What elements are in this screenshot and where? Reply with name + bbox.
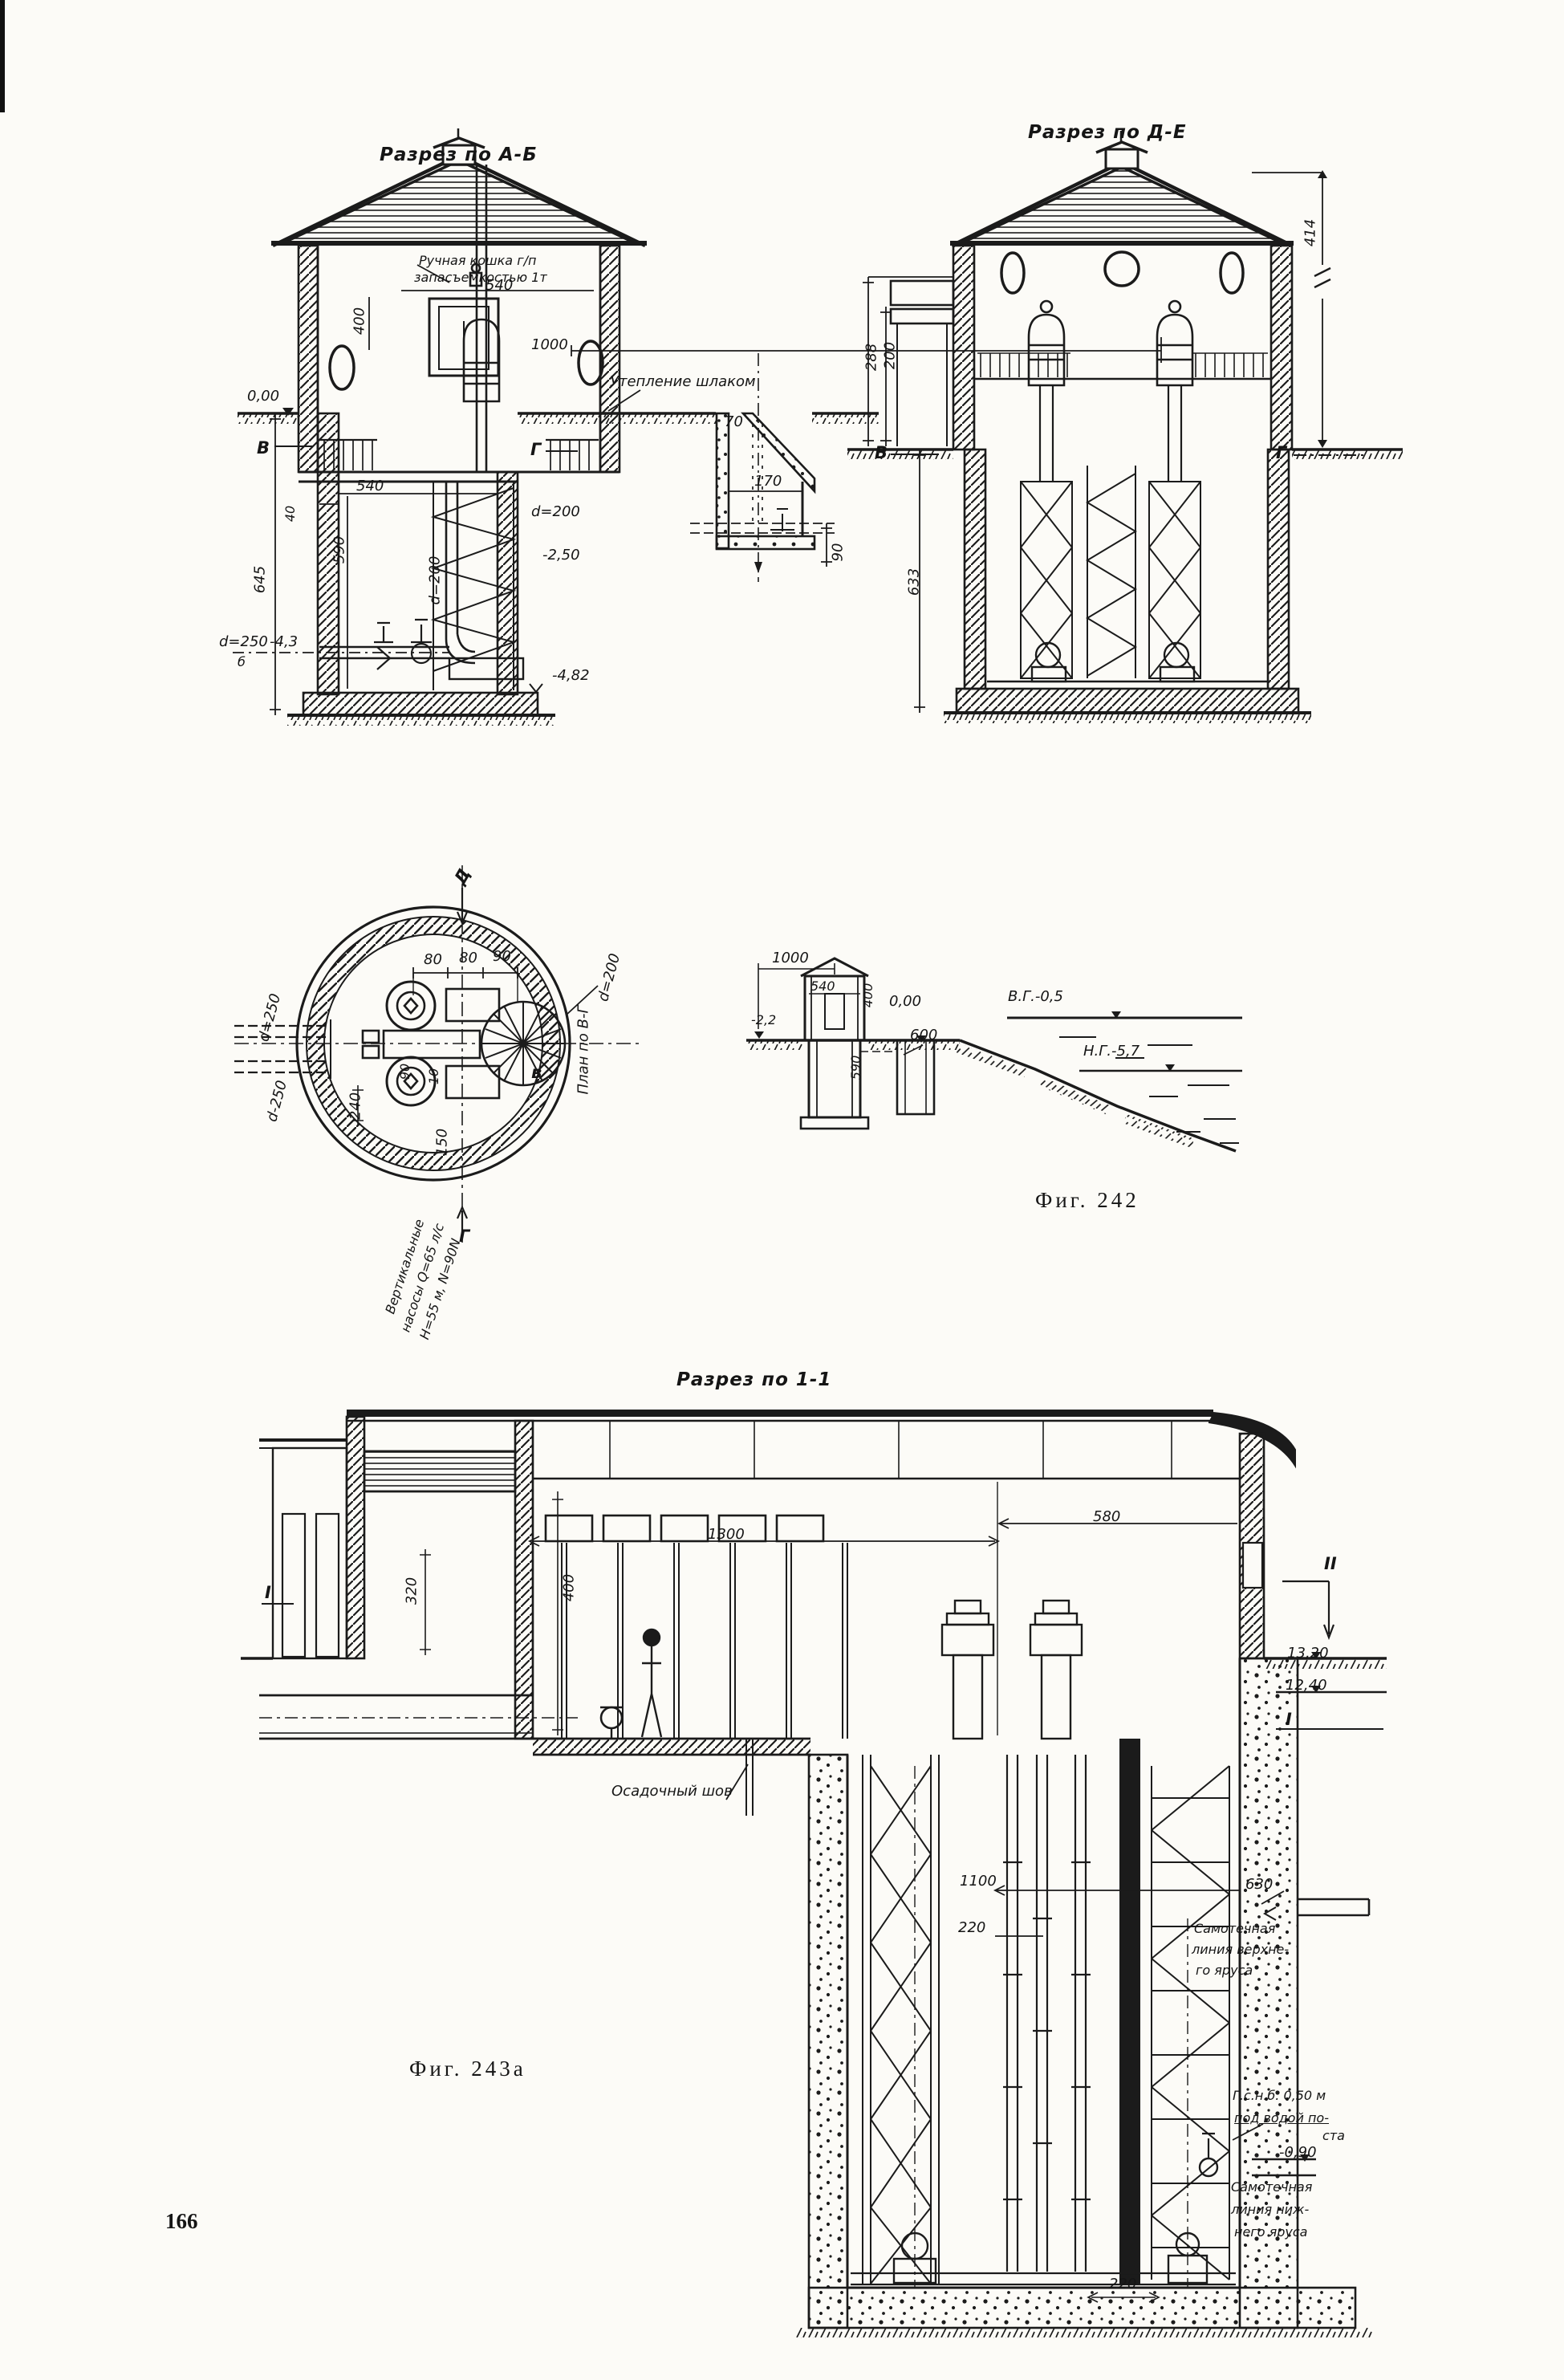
level-minus-0-90: -0,90 xyxy=(1279,2145,1317,2162)
level-13-20: 13,20 xyxy=(1287,1646,1329,1662)
spiral-stair-de xyxy=(1087,466,1135,678)
figure-243a-caption: Фиг. 243а xyxy=(409,2057,526,2081)
dim-220: 220 xyxy=(958,1920,985,1937)
profile-dim-600: 600 xyxy=(910,1027,937,1044)
level-minus-4-82: -4,82 xyxy=(552,668,590,685)
plan-dim-240: 240 xyxy=(348,1092,365,1120)
riser-bells xyxy=(1029,301,1192,482)
dim-633: 633 xyxy=(907,568,924,596)
dim-400-s11: 400 xyxy=(562,1574,579,1601)
settlement-joint-note: Осадочный шов xyxy=(611,1784,733,1800)
section-ab-drawing xyxy=(217,136,891,755)
label-d250: d=250 xyxy=(219,634,268,651)
crane-note-line2: запасъемкостью 1т xyxy=(414,271,547,285)
profile-level-2-2: -2,2 xyxy=(751,1013,776,1027)
profile-level-vg: В.Г.-0,5 xyxy=(1008,989,1063,1006)
gsnb-note-3: ста xyxy=(1322,2129,1345,2143)
dim-220-bottom: 220 xyxy=(1109,2276,1136,2293)
page-number: 166 xyxy=(165,2209,198,2234)
crane-note-line1: Ручная кошка г/п xyxy=(419,254,536,268)
level-0-00: 0,00 xyxy=(247,389,279,405)
dim-645: 645 xyxy=(253,566,270,593)
stair-plan xyxy=(481,1002,565,1085)
dim-540-top: 540 xyxy=(485,278,513,295)
marker-v-de: В xyxy=(875,443,888,462)
profile-level-0-00: 0,00 xyxy=(889,994,921,1011)
plan-view-label: План по В-Г xyxy=(576,1006,593,1095)
gravity-line-lower-3: него яруса xyxy=(1234,2225,1307,2240)
marker-i-left: I xyxy=(265,1583,271,1602)
pit-dim-70: 70 xyxy=(725,414,743,431)
dim-540: 540 xyxy=(356,478,384,495)
pit-label-d200: d=200 xyxy=(531,504,580,521)
pit-dim-90: 90 xyxy=(831,543,847,562)
section-de-drawing xyxy=(843,112,1412,755)
profile-dim-400: 400 xyxy=(861,983,875,1008)
shore-profile-drawing xyxy=(738,939,1252,1180)
section-ab-title: Разрез по А-Б xyxy=(380,144,538,165)
pit-stair xyxy=(1152,1766,1229,2280)
pit-level-minus-2-50: -2,50 xyxy=(542,547,580,564)
section-de-title: Разрез по Д-Е xyxy=(1028,122,1187,143)
plan-dim-150: 150 xyxy=(435,1129,452,1156)
dim-630: 630 xyxy=(1245,1877,1273,1894)
level-12-40: 12,40 xyxy=(1286,1678,1327,1694)
marker-ii: II xyxy=(1324,1554,1337,1573)
gsnb-note-2: под водой по- xyxy=(1234,2111,1329,2126)
window-row xyxy=(546,1515,823,1541)
profile-dim-590: 590 xyxy=(849,1056,863,1080)
gravity-line-upper-1: Самотечная xyxy=(1194,1922,1275,1936)
dim-414: 414 xyxy=(1303,219,1320,246)
scanned-book-page: Разрез по А-Б Ручная кошка г/п запасъемк… xyxy=(0,0,1564,2380)
dim-1100: 1100 xyxy=(960,1873,997,1890)
insulation-note: Утепление шлаком xyxy=(610,374,756,391)
level-minus-4-3: -4,3 xyxy=(270,634,298,651)
marker-b-small: б xyxy=(238,655,246,669)
pumps-de xyxy=(987,643,1268,681)
gravity-line-upper-2: линия верхне- xyxy=(1192,1943,1289,1957)
dim-200: 200 xyxy=(883,342,900,369)
pit-bottom-pumps xyxy=(851,2233,1236,2284)
plan-dim-10: 10 xyxy=(427,1068,441,1084)
dim-1300: 1300 xyxy=(708,1527,745,1544)
valves xyxy=(374,620,432,669)
person-figure xyxy=(642,1629,661,1737)
marker-i-right: I xyxy=(1286,1710,1292,1729)
lattice-towers xyxy=(1021,482,1200,678)
marker-g-de: Г xyxy=(1276,443,1286,462)
gravity-line-upper-3: го яруса xyxy=(1196,1963,1253,1978)
marker-v-small-plan: в xyxy=(531,1063,542,1082)
dim-580: 580 xyxy=(1093,1509,1120,1526)
scan-edge-artifact xyxy=(0,0,5,112)
label-d200-pipe: d=200 xyxy=(428,556,445,605)
plan-dim-90: 90 xyxy=(493,949,511,966)
gravity-line-lower-1: Самотечная xyxy=(1231,2180,1312,2195)
dim-590: 590 xyxy=(332,536,349,563)
dim-40: 40 xyxy=(283,506,298,522)
dim-288: 288 xyxy=(864,344,881,371)
profile-dim-1000: 1000 xyxy=(772,950,809,967)
dim-400: 400 xyxy=(352,307,369,335)
plan-dim-80b: 80 xyxy=(459,950,477,967)
section-11-drawing xyxy=(241,1397,1388,2360)
pump-machines xyxy=(942,1601,1082,1739)
section-11-title: Разрез по 1-1 xyxy=(676,1369,831,1390)
building-section xyxy=(241,1410,1387,2338)
pit-dim-170: 170 xyxy=(754,474,782,490)
dim-1000: 1000 xyxy=(531,337,568,354)
profile-level-ng: Н.Г.-5,7 xyxy=(1083,1044,1139,1060)
plan-dim-90b: 90 xyxy=(398,1064,412,1080)
marker-g-ab: Г xyxy=(530,440,541,459)
dim-320: 320 xyxy=(404,1577,421,1605)
plan-dim-80a: 80 xyxy=(424,952,442,969)
pit-lattice xyxy=(863,1755,939,2284)
profile-dim-540: 540 xyxy=(810,979,835,994)
figure-242-caption: Фиг. 242 xyxy=(1035,1188,1139,1213)
marker-v-ab: В xyxy=(257,438,270,458)
gsnb-note-1: Г.с.н.б. 0,50 м xyxy=(1233,2089,1326,2103)
pit-pipes xyxy=(1003,1755,1091,2272)
gravity-line-lower-2: линия ниж- xyxy=(1231,2203,1309,2217)
